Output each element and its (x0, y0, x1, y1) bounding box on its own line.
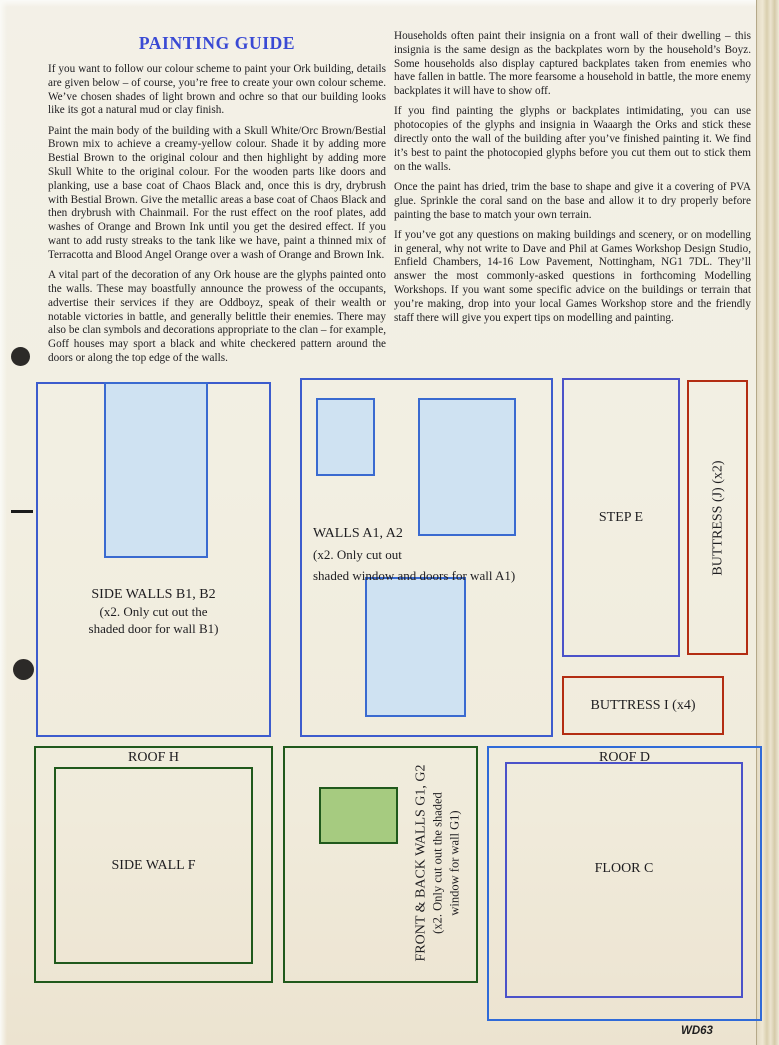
template-note: (x2. Only cut out (313, 544, 515, 565)
template-title: ROOF H (36, 749, 271, 766)
paragraph: Paint the main body of the building with… (48, 125, 386, 263)
hole-punch-bottom (13, 659, 34, 680)
shaded-window-a1 (316, 398, 375, 476)
shaded-door-a1-lower (365, 577, 466, 717)
template-title: FLOOR C (507, 752, 741, 984)
paragraph: If you’ve got any questions on making bu… (394, 229, 751, 326)
hole-punch-top (11, 347, 30, 366)
template-note: (x2. Only cut out the shaded (430, 764, 447, 961)
template-step-e: STEP E (562, 378, 680, 657)
template-title: SIDE WALL F (56, 769, 251, 962)
template-note: shaded door for wall B1) (38, 620, 269, 637)
template-note: window for wall G1) (447, 764, 464, 961)
paragraph: If you want to follow our colour scheme … (48, 63, 386, 118)
page-title: PAINTING GUIDE (48, 33, 386, 54)
shaded-door-b1 (104, 382, 208, 558)
page-number-code: WD63 (681, 1025, 713, 1037)
template-label: FRONT & BACK WALLS G1, G2 (x2. Only cut … (413, 764, 464, 961)
shaded-window-g1 (319, 787, 398, 844)
template-walls-a: WALLS A1, A2 (x2. Only cut out shaded wi… (300, 378, 553, 737)
template-roof-d: ROOF D FLOOR C (487, 746, 762, 1021)
template-buttress-j: BUTTRESS (J) (x2) (687, 380, 748, 655)
registration-mark (11, 510, 33, 513)
paragraph: Households often paint their insignia on… (394, 30, 751, 99)
left-text-column: If you want to follow our colour scheme … (48, 63, 386, 372)
template-title: SIDE WALLS B1, B2 (38, 586, 269, 603)
right-text-column: Households often paint their insignia on… (394, 30, 751, 332)
paragraph: If you find painting the glyphs or backp… (394, 105, 751, 174)
template-title: BUTTRESS (J) (x2) (709, 460, 726, 575)
template-label: WALLS A1, A2 (x2. Only cut out shaded wi… (313, 523, 515, 586)
template-note: (x2. Only cut out the (38, 603, 269, 620)
template-title: STEP E (564, 380, 678, 655)
template-side-wall-f: SIDE WALL F (54, 767, 253, 964)
template-title: WALLS A1, A2 (313, 523, 515, 544)
paragraph: A vital part of the decoration of any Or… (48, 269, 386, 366)
scanned-page: PAINTING GUIDE If you want to follow our… (0, 0, 779, 1045)
template-note: shaded window and doors for wall A1) (313, 565, 515, 586)
template-title: FRONT & BACK WALLS G1, G2 (413, 764, 430, 961)
template-side-walls-b: SIDE WALLS B1, B2 (x2. Only cut out the … (36, 382, 271, 737)
template-roof-h: ROOF H SIDE WALL F (34, 746, 273, 983)
template-label: SIDE WALLS B1, B2 (x2. Only cut out the … (38, 586, 269, 637)
template-buttress-i: BUTTRESS I (x4) (562, 676, 724, 735)
scan-edge-top (0, 0, 779, 7)
template-walls-g: FRONT & BACK WALLS G1, G2 (x2. Only cut … (283, 746, 478, 983)
shaded-door-a1-upper (418, 398, 516, 536)
scan-edge-left (0, 0, 7, 1045)
template-floor-c: FLOOR C (505, 762, 743, 998)
paragraph: Once the paint has dried, trim the base … (394, 181, 751, 222)
template-title: BUTTRESS I (x4) (564, 678, 722, 733)
